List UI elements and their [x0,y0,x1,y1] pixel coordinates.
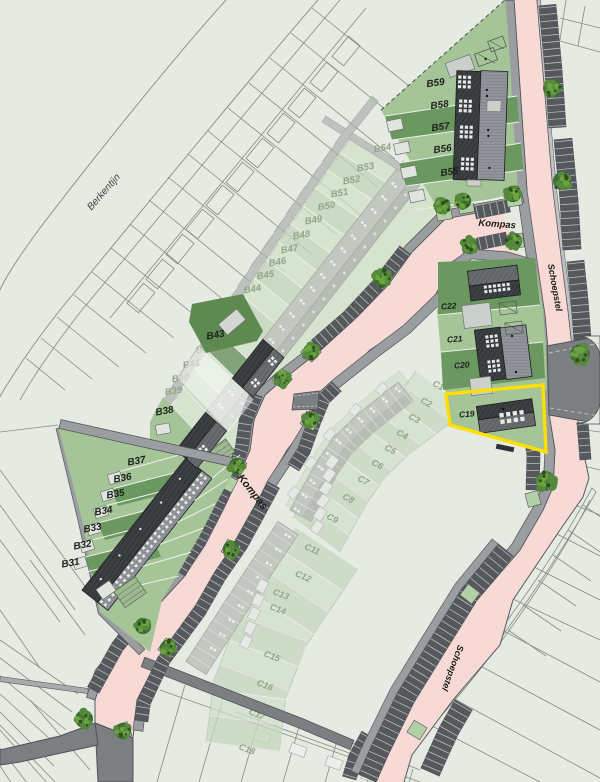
svg-text:C22: C22 [441,300,458,311]
svg-text:C19: C19 [459,408,476,419]
svg-text:C20: C20 [454,359,471,370]
svg-text:C21: C21 [447,333,464,344]
